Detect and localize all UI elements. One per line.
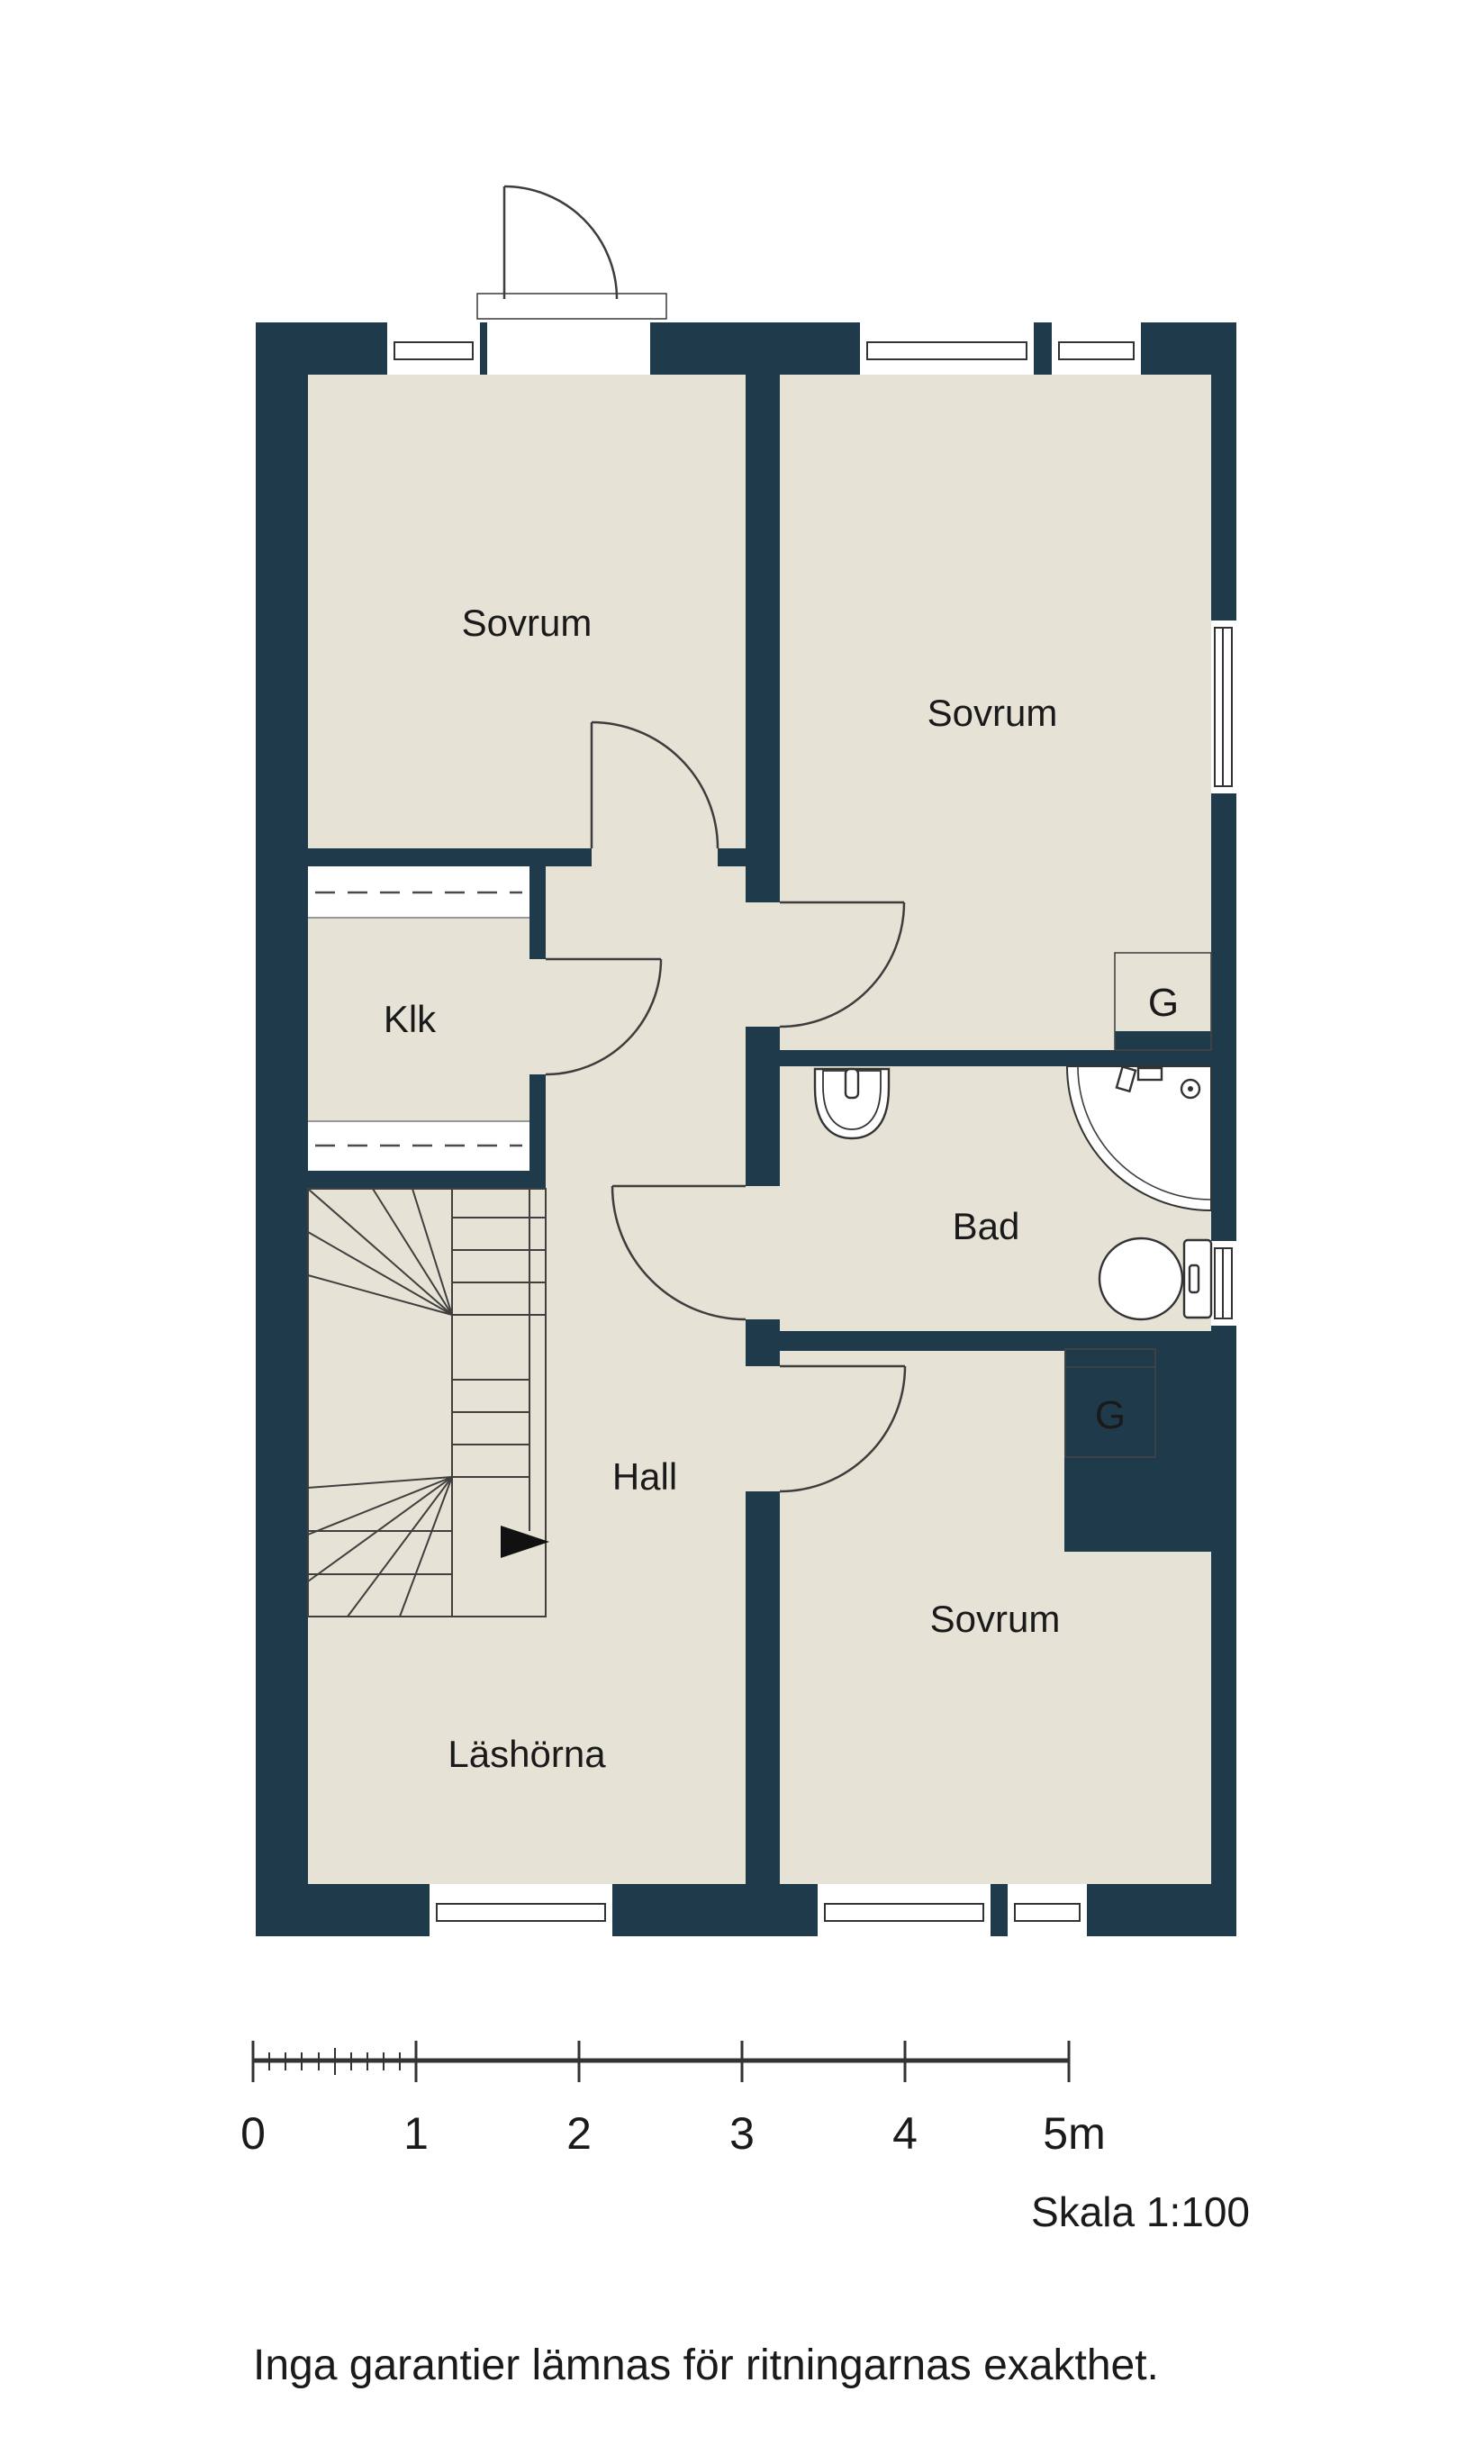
window-top-left-bedroom — [387, 322, 480, 375]
scale-bar-labels: 0 1 2 3 4 5m — [240, 2108, 1106, 2159]
wall-segment — [1211, 322, 1236, 1936]
scale-note: Skala 1:100 — [1031, 2188, 1250, 2235]
scale-tick-4: 4 — [892, 2108, 918, 2159]
scale-bar: 0 1 2 3 4 5m — [240, 2041, 1106, 2159]
window-right-bathroom — [1211, 1241, 1236, 1326]
entrance-door-arc — [504, 186, 617, 299]
floor-plan-page: G G Sovrum Sovrum Klk Bad Hall Läshörna … — [0, 0, 1484, 2464]
room-label-klk: Klk — [384, 998, 437, 1040]
entrance-door — [477, 186, 666, 375]
scale-tick-2: 2 — [566, 2108, 592, 2159]
room-label-hall: Hall — [612, 1455, 677, 1498]
floor-plan-drawing: G G Sovrum Sovrum Klk Bad Hall Läshörna … — [0, 0, 1484, 2464]
disclaimer-text: Inga garantier lämnas för ritningarnas e… — [253, 2342, 1159, 2389]
wall-segment — [529, 866, 546, 959]
wall-segment — [1064, 1351, 1211, 1552]
window-bottom-lashorna — [430, 1884, 612, 1936]
window-bottom-bedroom-small — [1008, 1884, 1087, 1936]
wall-segment — [256, 1884, 1236, 1936]
scale-tick-3: 3 — [729, 2108, 755, 2159]
closet-lower-label: G — [1095, 1393, 1126, 1437]
wall-segment — [256, 322, 308, 1936]
room-label-sovrum-top-right: Sovrum — [927, 692, 1058, 734]
scale-tick-5m: 5m — [1043, 2108, 1105, 2159]
wall-segment — [529, 1074, 546, 1171]
toilet — [1099, 1238, 1211, 1319]
room-label-sovrum-top-left: Sovrum — [462, 602, 593, 644]
wall-segment — [774, 1331, 1211, 1351]
room-label-lashorna: Läshörna — [448, 1733, 606, 1775]
wall-segment — [746, 1491, 780, 1884]
window-top-right-bedroom-large — [860, 322, 1034, 375]
room-label-sovrum-bottom: Sovrum — [930, 1598, 1061, 1640]
sink — [815, 1069, 889, 1138]
entrance-opening — [487, 322, 650, 375]
wall-segment — [308, 1171, 546, 1189]
entrance-sill — [477, 294, 666, 319]
room-label-bad: Bad — [953, 1205, 1020, 1247]
scale-tick-0: 0 — [240, 2108, 266, 2159]
wall-segment — [308, 848, 592, 866]
window-top-right-bedroom-small — [1052, 322, 1141, 375]
window-bottom-bedroom-large — [818, 1884, 991, 1936]
wall-segment — [746, 322, 780, 902]
wall-segment — [1115, 1031, 1211, 1055]
closet-upper-label: G — [1148, 981, 1179, 1025]
scale-tick-1: 1 — [403, 2108, 429, 2159]
window-right-bedroom — [1211, 621, 1236, 793]
